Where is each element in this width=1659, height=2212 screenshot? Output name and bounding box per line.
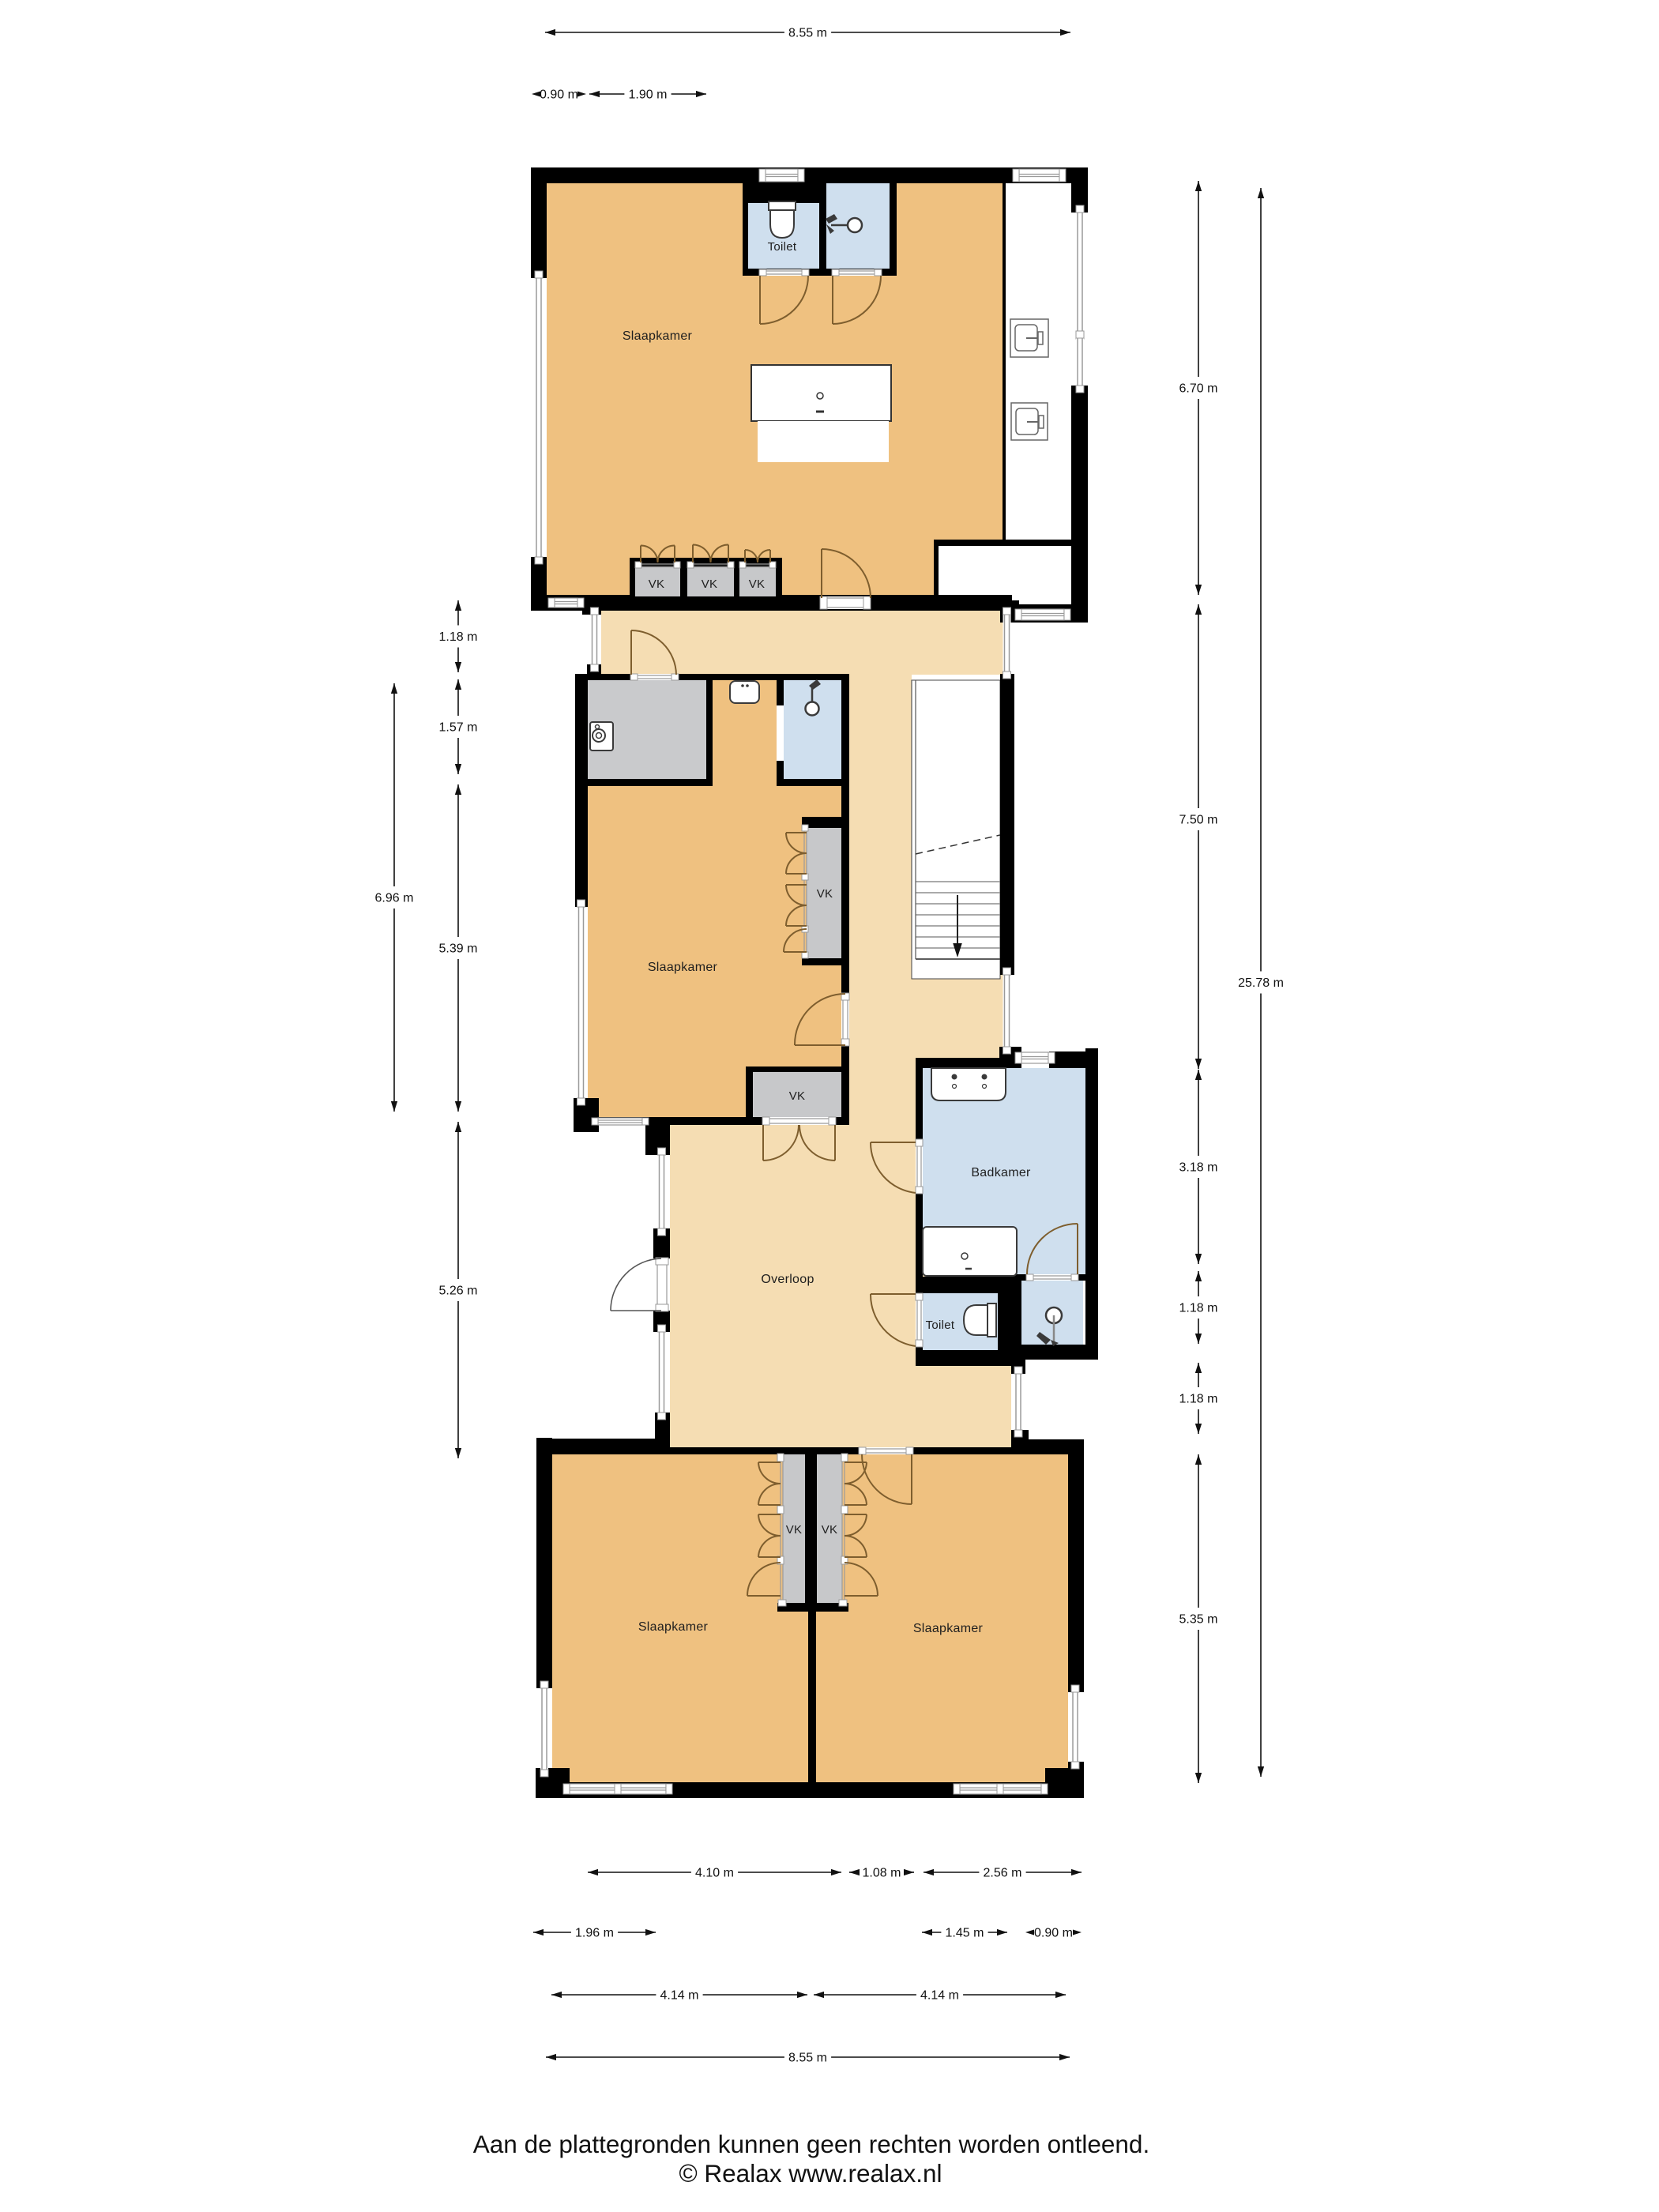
svg-text:VK: VK [749, 577, 766, 591]
svg-text:VK: VK [817, 887, 833, 901]
svg-text:VK: VK [822, 1523, 838, 1537]
svg-text:VK: VK [789, 1089, 806, 1103]
svg-text:Badkamer: Badkamer [971, 1166, 1031, 1179]
svg-text:3.18 m: 3.18 m [1179, 1161, 1218, 1175]
svg-text:1.57 m: 1.57 m [439, 721, 478, 735]
svg-text:6.70 m: 6.70 m [1179, 382, 1218, 396]
svg-text:VK: VK [702, 577, 718, 591]
svg-text:Slaapkamer: Slaapkamer [913, 1622, 984, 1635]
svg-text:0.90 m: 0.90 m [540, 88, 578, 102]
svg-text:1.18 m: 1.18 m [1179, 1302, 1218, 1315]
svg-text:Toilet: Toilet [768, 240, 797, 254]
svg-text:1.90 m: 1.90 m [629, 88, 668, 102]
svg-text:Slaapkamer: Slaapkamer [623, 329, 693, 343]
svg-text:5.35 m: 5.35 m [1179, 1613, 1218, 1627]
svg-text:1.96 m: 1.96 m [575, 1927, 614, 1940]
svg-text:2.56 m: 2.56 m [984, 1867, 1022, 1880]
svg-text:VK: VK [786, 1523, 803, 1537]
svg-text:Aan de plattegronden kunnen ge: Aan de plattegronden kunnen geen rechten… [473, 2130, 1149, 2158]
svg-text:1.18 m: 1.18 m [1179, 1393, 1218, 1406]
svg-text:Toilet: Toilet [926, 1319, 955, 1332]
svg-text:1.45 m: 1.45 m [946, 1927, 984, 1940]
svg-text:7.50 m: 7.50 m [1179, 814, 1218, 827]
svg-text:1.18 m: 1.18 m [439, 630, 478, 644]
svg-text:0.90 m: 0.90 m [1034, 1927, 1073, 1940]
svg-text:VK: VK [649, 577, 665, 591]
svg-text:5.39 m: 5.39 m [439, 942, 478, 956]
svg-text:5.26 m: 5.26 m [439, 1285, 478, 1298]
svg-text:Slaapkamer: Slaapkamer [638, 1620, 709, 1634]
svg-text:4.10 m: 4.10 m [695, 1867, 734, 1880]
svg-text:4.14 m: 4.14 m [660, 1989, 699, 2003]
svg-text:Slaapkamer: Slaapkamer [648, 961, 718, 974]
svg-text:25.78 m: 25.78 m [1238, 976, 1284, 990]
svg-text:8.55 m: 8.55 m [788, 27, 827, 40]
svg-text:© Realax www.realax.nl: © Realax www.realax.nl [679, 2159, 942, 2188]
svg-text:Overloop: Overloop [761, 1273, 814, 1286]
svg-text:8.55 m: 8.55 m [788, 2052, 827, 2065]
svg-text:4.14 m: 4.14 m [920, 1989, 959, 2003]
svg-text:6.96 m: 6.96 m [375, 892, 414, 905]
svg-text:1.08 m: 1.08 m [863, 1867, 901, 1880]
